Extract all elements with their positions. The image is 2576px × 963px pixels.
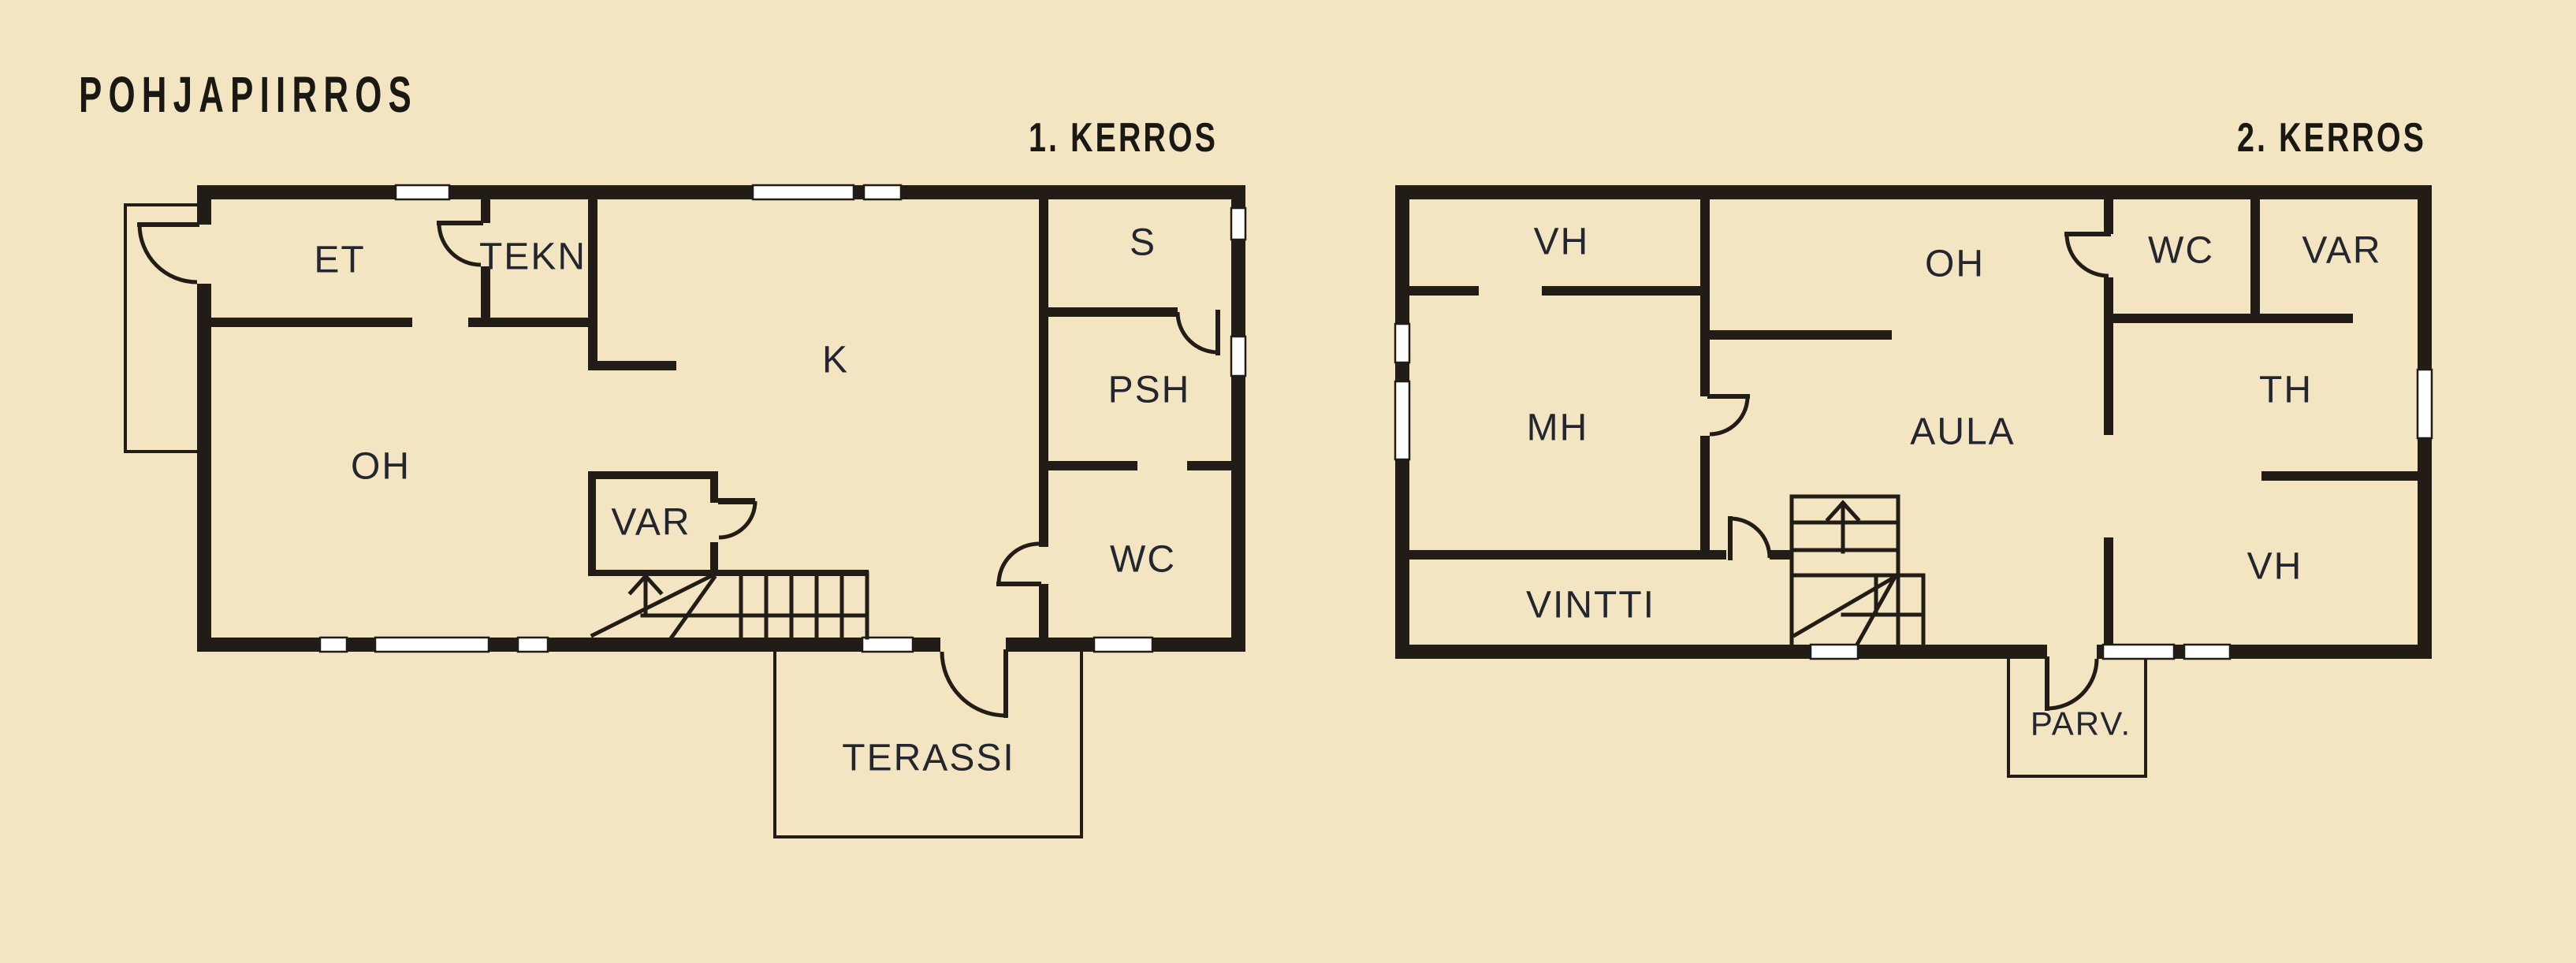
wall-segment [1231,185,1245,652]
window [1395,381,1409,459]
floorplan-drawing: POHJAPIIRROS 1. KERROS 2. KERROS [0,0,2576,963]
wall-segment [1409,286,1479,296]
floor1-windows [320,185,1245,652]
door-arc [140,225,197,282]
room-label-k: K [822,340,849,381]
floor1-staircase [593,573,867,646]
wall-segment [211,318,412,327]
wall-segment [197,185,211,225]
window [396,185,449,199]
wall-segment [197,185,1245,199]
wall-segment [2104,537,2113,645]
room-label-wc: WC [1110,539,1176,581]
window [1395,324,1409,363]
window [375,638,489,652]
floor2-staircase [1792,496,1923,645]
room-label-var: VAR [2302,230,2381,272]
door-arc [2047,659,2097,708]
stair-arrow-head [1843,503,1858,519]
wall-segment [710,479,718,503]
wall-segment [1395,185,2432,199]
wall-segment [1700,436,1710,556]
room-label-oh: OH [351,446,411,488]
door-arc [942,652,1006,716]
room-label-s: S [1130,222,1156,264]
window [862,638,913,652]
room-label-terassi: TERASSI [842,738,1014,779]
door-arc [439,223,481,265]
stair-arrow-head [631,576,646,593]
window [1231,336,1245,376]
room-label-tekn: TEKN [479,236,586,278]
wall-segment [197,638,940,652]
wall-segment [2113,314,2353,323]
window [2184,645,2230,659]
wall-segment [197,284,211,652]
wall-segment [1048,307,1178,317]
wall-segment [710,542,718,573]
room-label-var: VAR [611,502,691,544]
window [320,638,347,652]
wall-segment [1700,330,1892,340]
door-arc [719,501,755,537]
stair-arrow-head [1828,503,1843,519]
floorplan-page: POHJAPIIRROS 1. KERROS 2. KERROS [0,0,2576,963]
room-label-et: ET [314,240,365,281]
wall-segment [588,471,718,479]
door-arc [999,544,1039,584]
room-label-th: TH [2259,370,2313,411]
room-label-aula: AULA [1910,411,2015,453]
wall-segment [718,498,755,504]
window [864,185,901,199]
window [2418,370,2432,438]
wall-segment [1542,286,1700,296]
door-arc [1178,312,1218,352]
wall-segment [588,471,596,573]
floor2-title: 2. KERROS [2237,115,2426,161]
wall-segment [1395,645,2047,659]
window [518,638,548,652]
room-label-parv: PARV. [2031,705,2131,742]
wall-segment [1039,584,1048,638]
wall-segment [2104,199,2113,234]
window [2103,645,2174,659]
room-label-vh-top: VH [1534,221,1590,263]
wall-segment [1700,199,1710,396]
window [753,185,854,199]
wall-segment [2261,471,2418,481]
wall-segment [2250,199,2260,323]
wall-segment [1039,199,1048,547]
wall-segment [2104,277,2113,435]
floor1-plan: ET TEKN K S PSH OH VAR WC TERASSI [125,185,1245,837]
page-title: POHJAPIIRROS [79,66,418,123]
window [1811,645,1858,659]
room-label-mh: MH [1527,407,1589,449]
wall-segment [1048,461,1137,470]
room-label-wc: WC [2148,230,2214,272]
wall-segment [1409,550,1726,560]
floor1-entry-porch-outline [125,205,202,452]
floor2-doors [1710,234,2109,708]
floor1-title: 1. KERROS [1029,115,1218,161]
wall-segment [588,199,597,370]
wall-segment [588,570,869,576]
window [1231,208,1245,240]
wall-segment [1770,550,1792,560]
room-label-oh: OH [1925,244,1985,285]
room-label-vintti: VINTTI [1526,585,1655,627]
floor2-plan: VH OH WC VAR MH AULA TH VH VINTTI PARV. [1395,185,2432,776]
wall-segment [1187,461,1231,470]
wall-segment [481,199,490,223]
stair-arrow-head [646,576,661,593]
door-arc [2067,234,2109,276]
door-arc [1730,519,1770,558]
window [1094,638,1152,652]
wall-segment [468,318,588,327]
room-label-vh-bottom: VH [2247,546,2303,588]
door-arc [1710,396,1748,434]
wall-segment [588,361,676,370]
room-label-psh: PSH [1108,370,1191,411]
